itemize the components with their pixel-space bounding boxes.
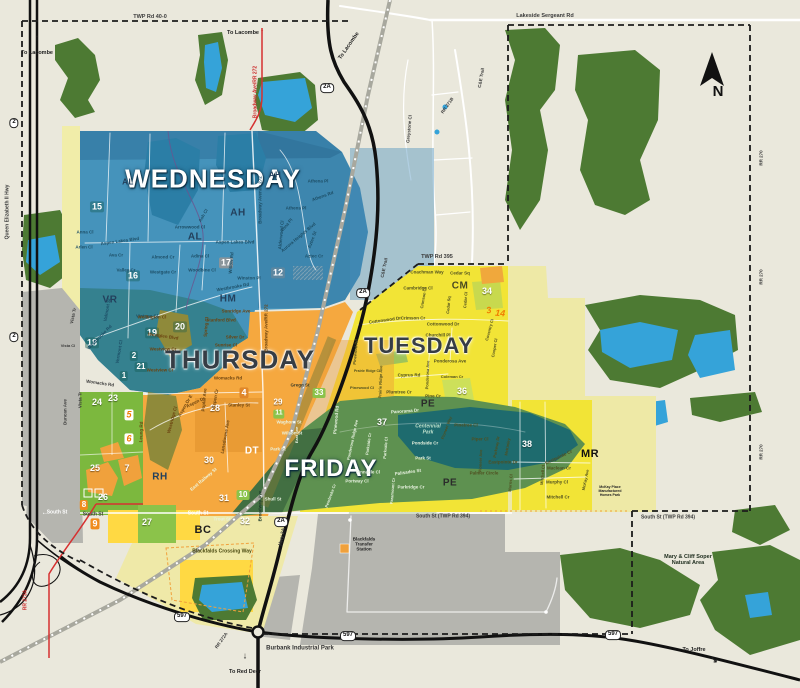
- street-pinewood-rd: Pinewood Rd: [333, 406, 340, 435]
- zone-17: 17: [219, 257, 233, 268]
- shield-2: 2: [9, 118, 18, 128]
- street-vermont-cl: Vermont Cl: [116, 340, 125, 364]
- street-mitchell-cr: Mitchell Cr: [546, 496, 569, 501]
- street-willow-rd: Willow Rd: [229, 252, 236, 274]
- street-stanford-blvd: Stanford Blvd: [206, 319, 236, 324]
- arrow-: ↘: [710, 656, 718, 665]
- road-hwy-2a: Hwy 2A: [278, 528, 287, 547]
- street-ponderosa-ridge-ave: Ponderosa Ridge Ave: [347, 419, 360, 460]
- street-valley-cr: Valley Cr: [116, 269, 135, 274]
- street-pinetree-cl: Pinetree Cl: [454, 424, 478, 429]
- poi-blackfalds-transfer-station: Blackfalds Transfer Station: [353, 538, 376, 553]
- hood-dt: DT: [245, 446, 259, 457]
- street-pinewood-cl: Pinewood Cl: [350, 386, 374, 390]
- street-mckinley: McKinley: [504, 438, 511, 456]
- street-sunridge-ave: Sunridge Ave: [222, 310, 251, 315]
- road-south-st: South St: [83, 512, 104, 518]
- hood-cm: CM: [452, 281, 469, 292]
- street-pioneer-ave: Pioneer Ave: [478, 450, 483, 473]
- zone-1: 1: [120, 371, 128, 381]
- zone-30: 30: [204, 456, 214, 466]
- road-c-e-trail: C&E Trail: [478, 68, 486, 89]
- shield-2a: 2A: [320, 83, 334, 93]
- road-c-e-trail: C&E Trail: [381, 258, 390, 279]
- hood-al: AL: [122, 179, 134, 188]
- hood-hm: HM: [220, 294, 237, 305]
- street-parkridge-cr: Parkridge Cr: [397, 486, 424, 491]
- road-south-st-twp-rd-394: South St (TWP Rd 394): [641, 515, 695, 521]
- zone-21: 21: [135, 362, 148, 372]
- street-aurora-heights-blvd: Aurora Heights Blvd: [281, 222, 318, 254]
- street-crimson-cr: Crimson Cr: [401, 317, 426, 322]
- street-cambridge-cl: Cambridge Cl: [403, 287, 432, 292]
- labels-layer: WEDNESDAYTHURSDAYTUESDAYFRIDAYALAHAHALVR…: [0, 0, 800, 688]
- zone-12: 12: [271, 267, 285, 278]
- street-spring-cl: Spring Cl: [204, 317, 211, 337]
- street-athena-pl: Athena Pl: [308, 180, 329, 185]
- zone-28: 28: [210, 404, 220, 414]
- street-lansdowne-ave: Lansdowne Ave: [221, 420, 232, 454]
- street-vintage-cl: Vintage Cl: [136, 315, 158, 320]
- hood-vr: VR: [103, 295, 118, 306]
- road-twp-rd-40-0: TWP Rd 40-0: [133, 14, 167, 20]
- street-anna-pl: Anna Pl: [280, 218, 295, 234]
- street-palmer-circle: Palmer Circle: [470, 472, 499, 477]
- road-duncan-ave: Duncan Ave: [64, 399, 69, 425]
- street-mitchell-cl: Mitchell Cl: [540, 465, 546, 485]
- day-thursday: THURSDAY: [165, 346, 315, 375]
- road-broadway-ave-rr-272: Broadway Ave/RR 272: [253, 66, 259, 118]
- street-ava-cr: Ava Cr: [109, 254, 123, 259]
- zone-25: 25: [90, 464, 100, 474]
- road-blackfalds-crossing-way: Blackfalds Crossing Way: [192, 549, 252, 555]
- street-stanley-st: Stanley St: [228, 404, 250, 409]
- street-murphy-cl: Murphy Cl: [546, 481, 568, 486]
- zone-37: 37: [377, 418, 387, 428]
- street-panorama-dr: Panorama Dr: [391, 409, 419, 416]
- road-broadway-ave: Broadway Ave: [259, 491, 264, 522]
- road-rr-271b: RR 271B: [441, 97, 456, 115]
- dir-to-joffre: To Joffre: [682, 647, 705, 653]
- zone-10: 10: [237, 490, 250, 500]
- zone-33: 33: [313, 388, 326, 398]
- street-piper-cl: Piper Cl: [471, 438, 488, 443]
- street-cedar-sq: Cedar Sq: [450, 272, 470, 277]
- road-rr-270: RR 270: [760, 444, 765, 459]
- street-eastpointe-dr: Eastpointe Dr: [488, 461, 517, 466]
- street-aspen-dr: Aspen Dr: [186, 397, 206, 410]
- street-pinnacle-cl: Pinnacle Cl: [356, 471, 380, 476]
- street-cooper-cl: Cooper Cl: [491, 338, 499, 358]
- poi-mckay-place-manufactured-homes-park: McKay Place Manufactured Homes Park: [599, 486, 622, 498]
- zone-31: 31: [219, 494, 229, 504]
- street-coventry-cl: Coventry Cl: [485, 319, 495, 342]
- arrow-: ↓: [243, 652, 248, 661]
- street-almond-cr: Almond Cr: [152, 256, 175, 261]
- street-westglen-blvd: Westglen Blvd: [147, 332, 178, 341]
- road-vista-cl: Vista Cl: [61, 344, 76, 348]
- zone-27: 27: [142, 518, 152, 528]
- north-arrow-icon: [694, 48, 734, 108]
- street-sunrise-cl: Sunrise Cl: [215, 344, 237, 349]
- street-eastpointe-cr: Eastpointe Cr: [545, 450, 574, 467]
- street-westview-cr: Westview Cr: [150, 348, 177, 353]
- street-aspen-dr-e: Aspen Dr E: [178, 394, 194, 417]
- day-wednesday: WEDNESDAY: [125, 165, 301, 194]
- arrow-: ↑: [260, 28, 264, 36]
- street-aspen-cr: Aspen Cr: [212, 389, 220, 410]
- street-cyprus-rd: Cyprus Rd: [398, 374, 421, 379]
- street-pioneer-way: Pioneer Way: [441, 416, 453, 440]
- street-athens-rd: Athens Rd: [312, 191, 335, 203]
- zone-15: 15: [90, 201, 104, 212]
- road-south-st-twp-rd-394: South St (TWP Rd 394): [416, 514, 470, 520]
- street-gregg-st: Gregg St: [290, 384, 309, 389]
- street-alderwood-cl: Alderwood Cl: [278, 220, 285, 249]
- street-adina-cl: Adina Cl: [191, 255, 209, 260]
- street-coleman-cr: Coleman Cr: [441, 375, 463, 379]
- hood-pe: PE: [443, 478, 457, 489]
- street-cottonwood-dr: Cottonwood Dr: [369, 316, 402, 325]
- street-silver-dr: Silver Dr: [226, 336, 245, 341]
- street-parkway-dr: Parkway Dr: [493, 436, 501, 458]
- zone-38: 38: [522, 440, 532, 450]
- road-rr-270: RR 270: [760, 150, 765, 165]
- road-waghorn-st: Waghorn St: [276, 421, 301, 426]
- zone-24: 24: [92, 398, 102, 408]
- shield-2a: 2A: [274, 517, 288, 527]
- street-plumtree-cr: Plumtree Cr: [386, 391, 412, 396]
- street-anna-cl: Anna Cl: [76, 231, 93, 236]
- street-paramount-cr: Paramount Cr: [390, 478, 397, 505]
- road-trout-st: Trout St: [214, 518, 231, 523]
- street-valmont-st: Valmont St: [104, 298, 113, 322]
- street-portway-cl: Portway Cl: [345, 480, 368, 485]
- zone-34: 34: [482, 287, 492, 297]
- road-twp-rd-395: TWP Rd 395: [421, 254, 453, 260]
- street-prairie-ridge-ave: Prairie Ridge Ave: [378, 366, 384, 399]
- street-palisades-st: Palisades St: [395, 469, 422, 478]
- street-westbrooke-rd: Westbrooke Rd: [87, 325, 114, 352]
- road-womacks-rd: Womacks Rd: [86, 380, 115, 389]
- street-ponderosa-ave: Ponderosa Ave: [425, 361, 430, 390]
- zone-9: 9: [90, 518, 99, 529]
- zone-8: 8: [80, 500, 88, 510]
- street-crimson-cl: Crimson Cl: [420, 287, 428, 309]
- street-morris-cl: Morris Cl: [508, 474, 514, 492]
- street-parkvale-cl: Parkvale Cl: [383, 437, 389, 459]
- street-prairie-ridge-cl: Prairie Ridge Cl: [354, 370, 380, 374]
- road-rr-272a: RR 272A: [215, 632, 230, 650]
- street-aspen-lakes-blvd: Aspen Lakes Blvd: [216, 241, 255, 246]
- zone-2: 2: [130, 351, 138, 361]
- shield-597: 597: [340, 631, 356, 641]
- zone-20: 20: [173, 321, 187, 332]
- street-pondside-cr: Pondside Cr: [412, 442, 439, 447]
- street-pembroke-cr: Pembroke Cr: [325, 484, 338, 509]
- zone-7: 7: [124, 464, 129, 474]
- arrow-: ←: [42, 510, 49, 517]
- road-vista-tr: Vista Tr: [79, 392, 84, 408]
- dir-to-lacombe: To Lacombe: [227, 30, 259, 36]
- marker-6: 6: [124, 433, 133, 444]
- zone-23: 23: [108, 394, 118, 404]
- road-womacks-rd: Womacks Rd: [214, 377, 242, 382]
- road-shull-st: Shull St: [265, 498, 282, 503]
- poi-burbank-industrial-park: Burbank Industrial Park: [266, 646, 334, 653]
- compass: N: [694, 48, 734, 108]
- hood-ah: AH: [269, 172, 282, 181]
- zone-16: 16: [126, 270, 140, 281]
- road-greystone-cl: Greystone Cl: [406, 115, 413, 143]
- dir-to-lacombe: To Lacombe: [21, 50, 53, 56]
- zone-32: 32: [240, 517, 250, 527]
- marker-5: 5: [124, 409, 133, 420]
- road-south-st: South St: [188, 511, 209, 517]
- street-pinewood-rd: Pinewood Rd: [353, 339, 360, 365]
- road-wilson-st: Wilson St: [282, 432, 302, 437]
- street-aztec-cr: Aztec Cr: [305, 255, 323, 260]
- road-broadway-ave-rr-272: Broadway Ave/RR 272: [265, 304, 270, 351]
- road-vista-tr: Vista Tr: [70, 308, 78, 325]
- street-cedar-cl: Cedar Cl: [463, 292, 469, 309]
- zone-29: 29: [274, 399, 283, 408]
- street-poplar-ave: Poplar Ave: [202, 388, 209, 412]
- road-east-railway-st: East Railway St: [190, 467, 219, 492]
- street-east-ave: East Ave: [295, 427, 299, 444]
- road-broadway-avenue-272: Broadway Avenue 272: [259, 176, 264, 223]
- road-rr-270: RR 270: [760, 269, 765, 284]
- street-winston-pl: Winston Pl: [237, 277, 260, 282]
- waste-collection-schedule-map: WEDNESDAYTHURSDAYTUESDAYFRIDAYALAHAHALVR…: [0, 0, 800, 688]
- street-cedar-sq: Cedar Sq: [446, 296, 452, 314]
- street-westridge-cl: Westridge Cl: [167, 406, 179, 434]
- street-park-st: Park St: [415, 457, 431, 462]
- zone-18: 18: [85, 337, 99, 348]
- street-parkside-cr: Parkside Cr: [365, 433, 372, 456]
- zone-4: 4: [239, 387, 248, 398]
- zone-26: 26: [98, 493, 108, 503]
- street-arrowwood-cl: Arrowwood Cl: [175, 226, 206, 231]
- street-maclean-cr: Maclean Cr: [547, 467, 571, 472]
- street-ash-cl: Ash Cl: [198, 209, 209, 224]
- dir-to-lacombe: To Lacombe: [337, 31, 360, 61]
- shield-2: 2: [9, 332, 18, 342]
- road-lakeside-sergeant-rd: Lakeside Sergeant Rd: [516, 13, 573, 19]
- hood-bc: BC: [195, 524, 212, 536]
- street-leung-rd: Leung Rd: [139, 422, 145, 443]
- street-cottonwood-dr: Cottonwood Dr: [427, 323, 460, 328]
- arrow-: ↑: [35, 34, 40, 43]
- shield-597: 597: [174, 612, 190, 622]
- street-westview-cr: Westview Cr: [147, 369, 174, 374]
- street-mckay-ave: McKay Ave: [582, 469, 591, 490]
- street-westbrooke-rd: Westbrooke Rd: [216, 283, 249, 294]
- hood-rh: RH: [152, 472, 167, 483]
- hood-pe: PE: [421, 399, 435, 410]
- road-rr-273a: RR 273A: [23, 590, 29, 611]
- park-centennial-park: Centennial Park: [415, 425, 441, 436]
- street-pine-cr: Pine Cr: [425, 395, 441, 400]
- zone-36: 36: [457, 387, 467, 397]
- poi-mary-cliff-soper-natural-area: Mary & Cliff Soper Natural Area: [664, 554, 712, 566]
- street-athens-pl: Athens Pl: [286, 207, 307, 212]
- street-westgate-cr: Westgate Cr: [150, 271, 176, 276]
- street-ponderosa-ave: Ponderosa Ave: [434, 360, 466, 365]
- marker-14: 14: [495, 309, 506, 320]
- street-woodbine-cl: Woodbine Cl: [188, 269, 215, 274]
- zone-19: 19: [145, 327, 159, 338]
- hood-ah: AH: [230, 208, 245, 219]
- shield-597: 597: [605, 630, 621, 640]
- shield-2a: 2A: [356, 288, 370, 298]
- hood-al: AL: [188, 232, 202, 243]
- day-friday: FRIDAY: [284, 456, 377, 482]
- marker-3: 3: [486, 306, 493, 317]
- road-park-st: Park St: [270, 448, 286, 453]
- hood-mr: MR: [581, 448, 599, 460]
- dir-to-red-deer: To Red Deer: [229, 669, 261, 675]
- street-wellington-cl: Wellington Cl: [138, 316, 167, 321]
- day-tuesday: TUESDAY: [364, 334, 474, 358]
- street-aztec-st: Aztec St: [308, 231, 319, 249]
- street-churchill-pl: Churchill Pl: [425, 334, 450, 339]
- road-queen-elizabeth-ii-hwy: Queen Elizabeth II Hwy: [5, 185, 11, 240]
- zone-11: 11: [273, 410, 284, 419]
- street-arlen-cl: Arlen Cl: [75, 246, 92, 251]
- road-south-st: South St: [47, 510, 68, 516]
- street-aspen-lakes-blvd: Aspen Lakes Blvd: [100, 237, 139, 247]
- street-coachman-way: Coachman Way: [410, 271, 443, 276]
